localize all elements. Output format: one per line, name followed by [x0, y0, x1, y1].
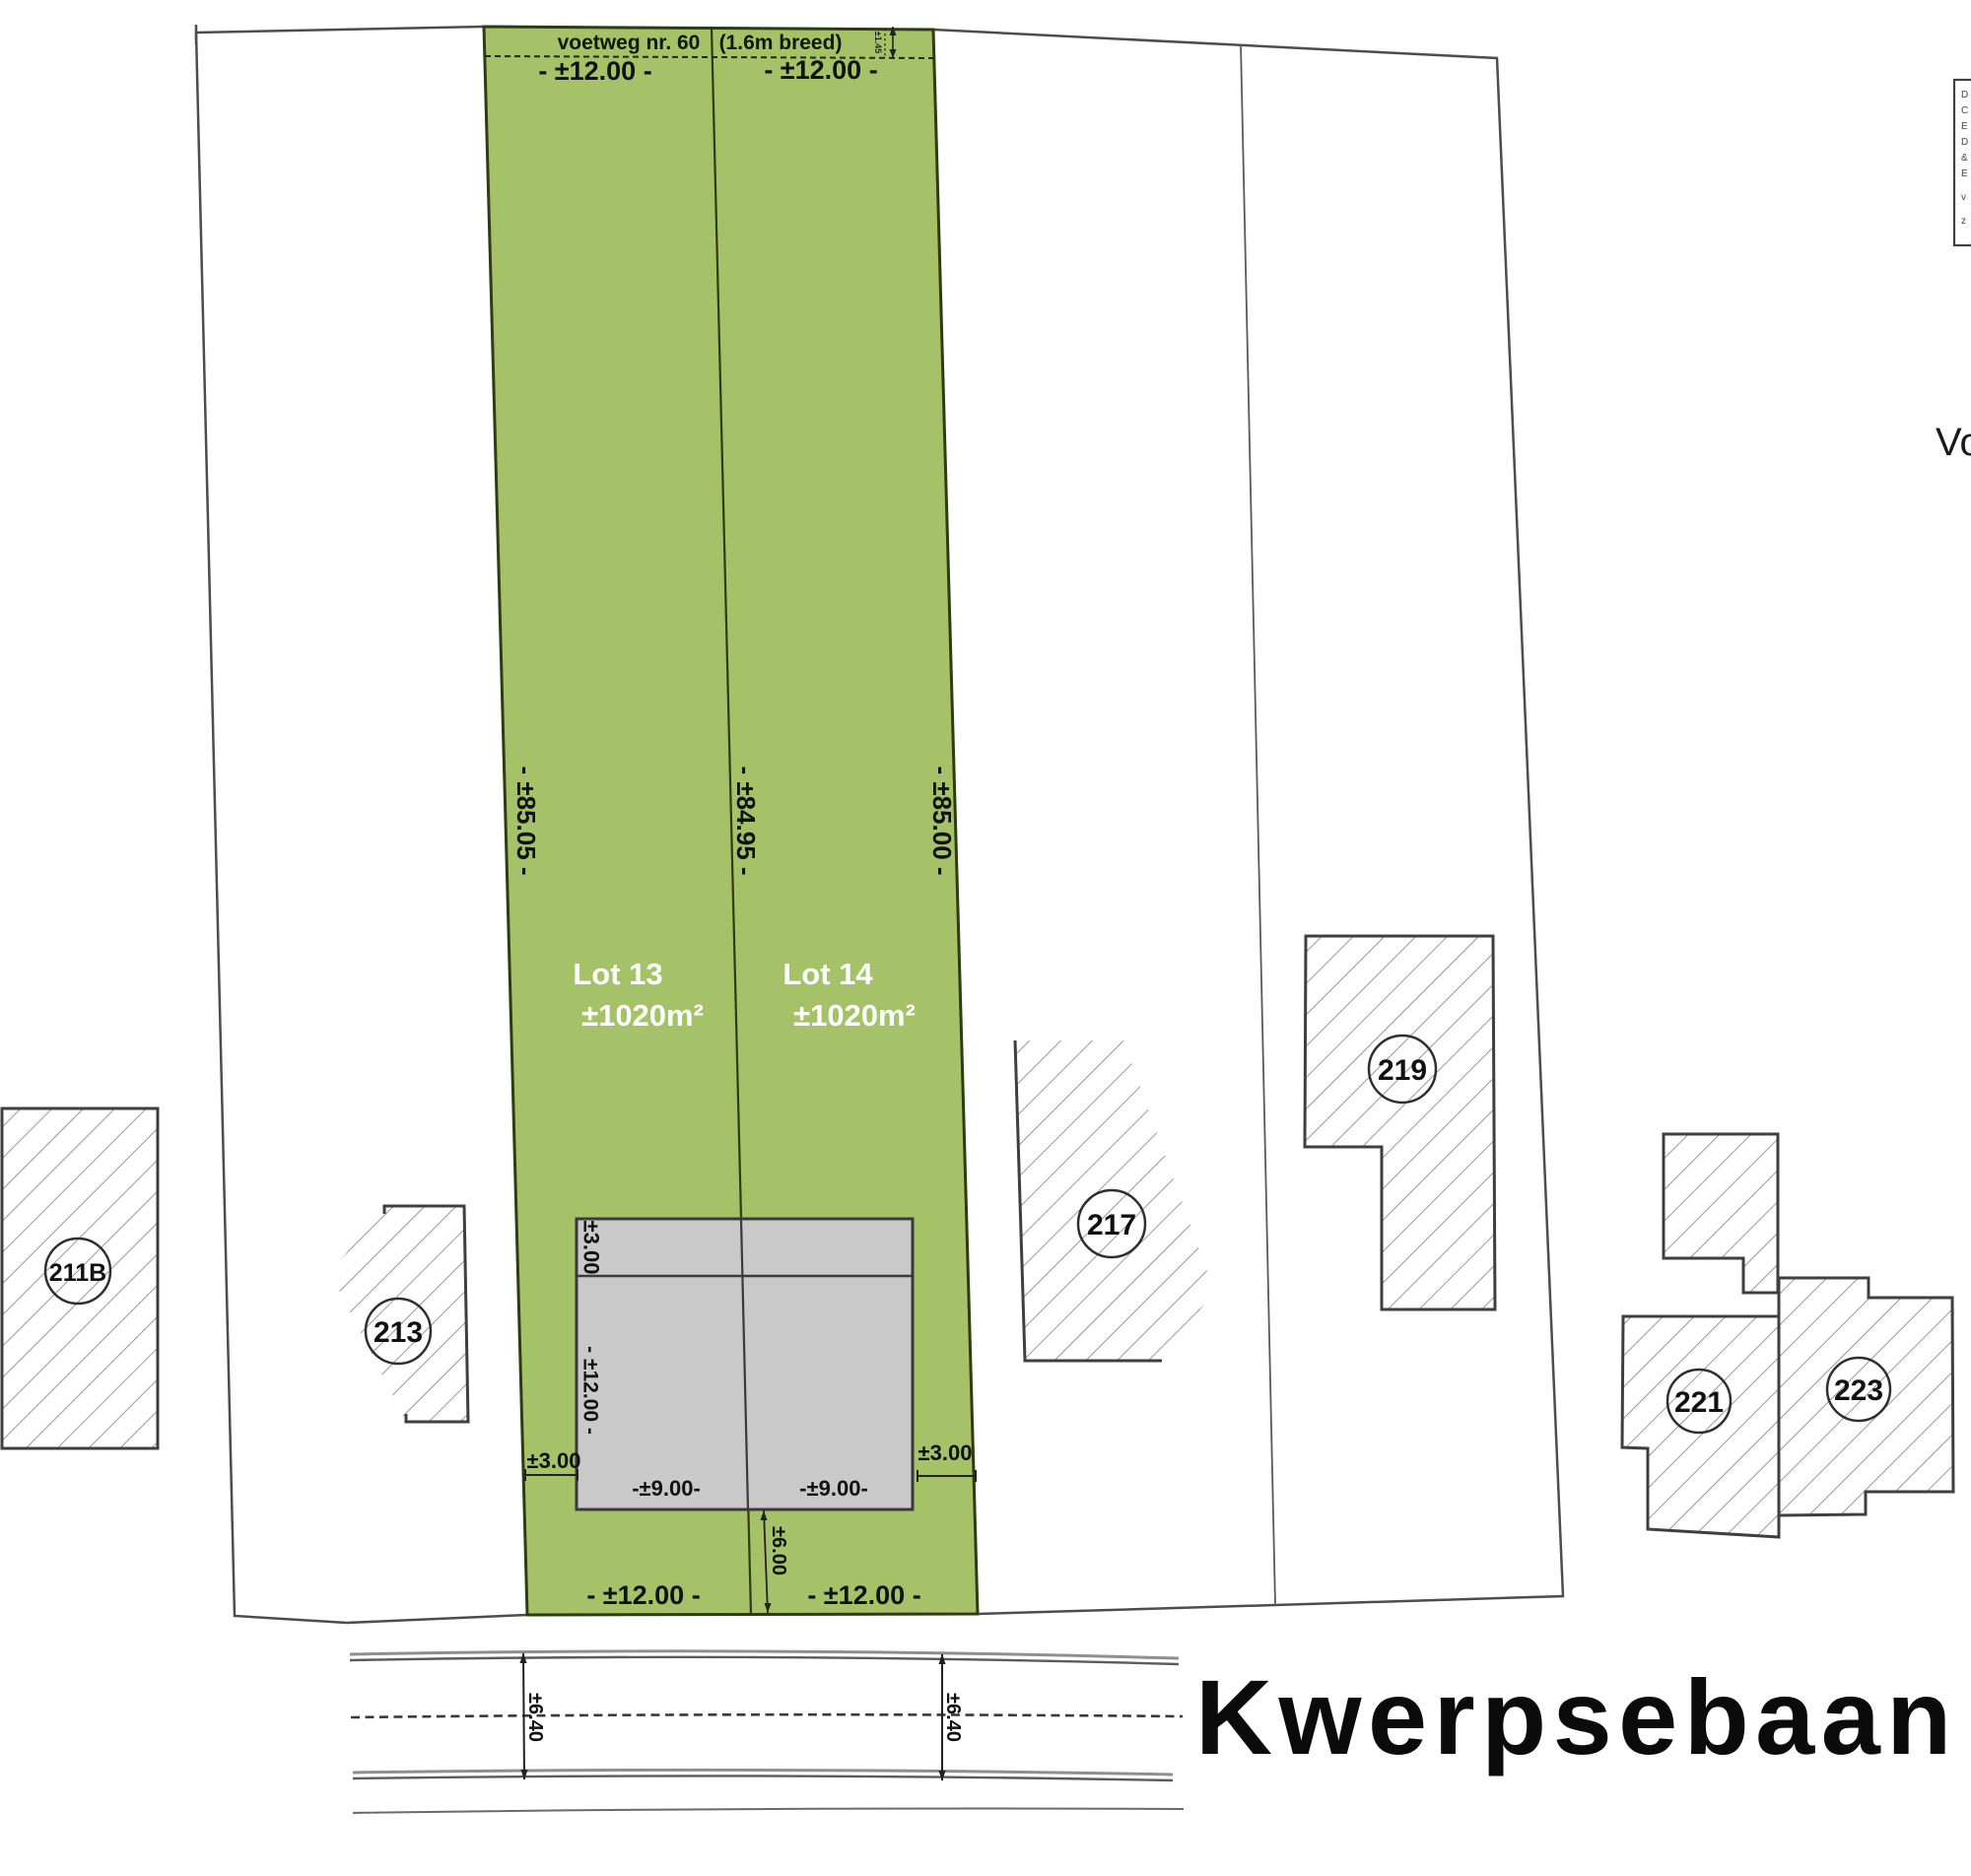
svg-text:±1020m²: ±1020m²: [581, 998, 704, 1033]
svg-text:-±9.00-: -±9.00-: [799, 1476, 868, 1501]
svg-text:- ±85.00 -: - ±85.00 -: [927, 766, 957, 875]
svg-text:±1.45: ±1.45: [873, 32, 883, 53]
svg-text:D: D: [1961, 137, 1968, 148]
svg-text:E: E: [1961, 121, 1968, 132]
svg-text:&: &: [1961, 153, 1968, 164]
svg-text:- ±12.00 -: - ±12.00 -: [764, 55, 877, 85]
svg-text:Lot 13: Lot 13: [573, 957, 662, 991]
svg-text:221: 221: [1674, 1386, 1724, 1419]
svg-text:(1.6m breed): (1.6m breed): [719, 32, 843, 54]
svg-text:±6.00: ±6.00: [768, 1526, 789, 1575]
svg-text:-±9.00-: -±9.00-: [632, 1476, 701, 1501]
svg-text:±3.00: ±3.00: [918, 1440, 973, 1465]
svg-text:voetweg nr. 60: voetweg nr. 60: [558, 32, 701, 54]
svg-text:±3.00: ±3.00: [527, 1448, 581, 1473]
svg-text:D: D: [1961, 90, 1968, 100]
svg-text:223: 223: [1834, 1374, 1883, 1407]
svg-text:- ±12.00 -: - ±12.00 -: [807, 1580, 920, 1610]
svg-text:E: E: [1961, 168, 1968, 179]
svg-text:v: v: [1961, 192, 1966, 203]
svg-text:217: 217: [1087, 1209, 1136, 1241]
svg-text:Kwerpsebaan: Kwerpsebaan: [1195, 1657, 1958, 1776]
svg-text:- ±84.95 -: - ±84.95 -: [731, 766, 761, 875]
svg-text:z: z: [1961, 216, 1966, 227]
svg-text:- ±12.00 -: - ±12.00 -: [586, 1580, 700, 1610]
svg-text:C: C: [1961, 105, 1968, 116]
svg-text:Vo: Vo: [1936, 421, 1971, 464]
svg-text:213: 213: [374, 1316, 423, 1349]
svg-text:- ±85.05 -: - ±85.05 -: [511, 766, 541, 875]
svg-text:±6.40: ±6.40: [942, 1693, 964, 1742]
svg-text:211B: 211B: [49, 1259, 106, 1287]
svg-text:±6.40: ±6.40: [524, 1693, 546, 1742]
svg-text:- ±12.00 -: - ±12.00 -: [538, 56, 651, 86]
svg-text:±3.00: ±3.00: [579, 1221, 604, 1275]
svg-text:219: 219: [1378, 1054, 1427, 1087]
svg-text:±1020m²: ±1020m²: [793, 998, 916, 1033]
svg-text:Lot 14: Lot 14: [782, 957, 873, 991]
svg-text:- ±12.00 -: - ±12.00 -: [579, 1346, 602, 1435]
